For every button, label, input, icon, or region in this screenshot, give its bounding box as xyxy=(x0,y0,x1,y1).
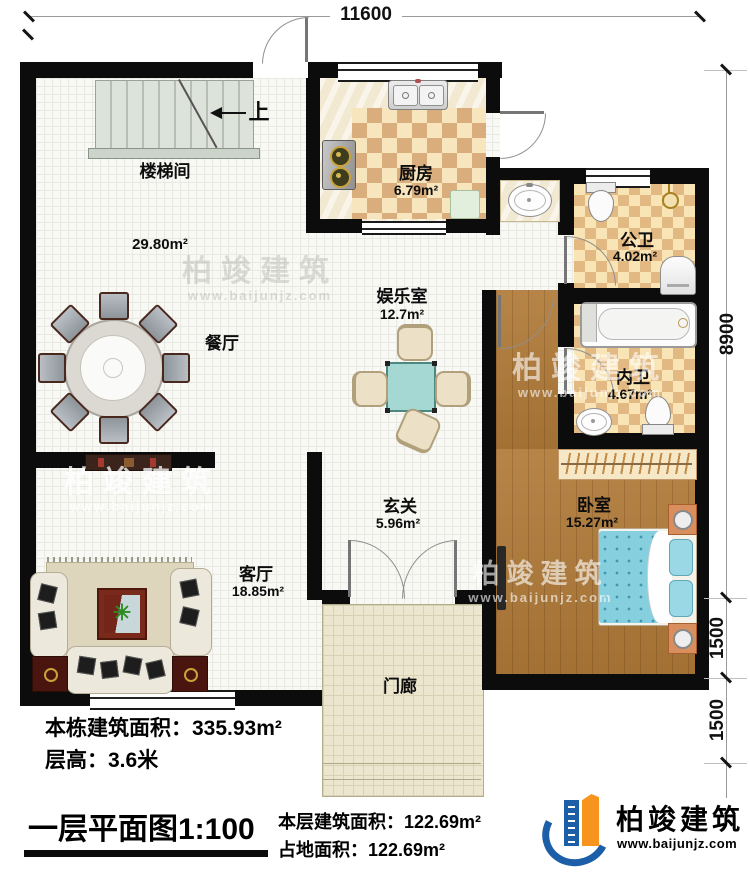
game-chair xyxy=(397,324,433,361)
table-corner xyxy=(432,361,437,366)
pillow xyxy=(669,580,693,617)
stairs-up-label: 上 xyxy=(246,101,272,124)
room-area-dining: 29.80m² xyxy=(110,237,210,254)
dim-tick xyxy=(22,28,34,40)
porch-step-line xyxy=(323,779,481,780)
nightstand xyxy=(668,623,697,654)
room-area-kitchen: 6.79m² xyxy=(376,183,456,198)
sideboard xyxy=(85,454,172,471)
sideboard-item xyxy=(150,458,156,467)
mahjong-table xyxy=(386,362,436,412)
sideboard-item xyxy=(98,458,104,467)
brand-website: www.baijunjz.com xyxy=(617,836,747,851)
room-area-entertainment: 12.7m² xyxy=(352,307,452,322)
end-table xyxy=(32,656,68,692)
kitchen-window xyxy=(338,62,478,82)
room-area-living: 18.85m² xyxy=(218,584,298,599)
basin-drain xyxy=(527,198,531,202)
inner-bath-bottom-wall xyxy=(558,433,709,449)
room-area-inner-bath: 4.67m² xyxy=(590,387,670,402)
room-area-public-bath: 4.02m² xyxy=(595,249,675,264)
dining-chair xyxy=(99,416,129,444)
wall-top-b xyxy=(308,62,338,78)
kitchen-left-wall xyxy=(306,78,320,219)
kitchen-pass-opening xyxy=(362,221,446,235)
wardrobe xyxy=(558,449,697,480)
right-dimension-label: 1500 xyxy=(707,685,731,755)
floor-area-text: 本层建筑面积：122.69m² xyxy=(278,808,518,834)
foyer-door-stub-left xyxy=(322,590,350,604)
pillow xyxy=(669,539,693,576)
dining-chair xyxy=(162,353,190,383)
right-dimension-label: 1500 xyxy=(707,603,731,673)
washer-controls xyxy=(667,284,689,287)
room-label-foyer: 玄关 xyxy=(360,498,440,517)
coffee-table: ✳ xyxy=(97,588,147,640)
stove xyxy=(322,140,356,190)
dining-chair xyxy=(99,292,129,320)
foyer-left-wall xyxy=(307,452,322,600)
end-table xyxy=(172,656,208,692)
sideboard-item xyxy=(124,458,134,467)
shower-head xyxy=(662,192,679,209)
stairs-landing xyxy=(88,148,260,159)
sink-faucet xyxy=(415,79,421,83)
bathtub xyxy=(580,302,697,348)
tv-panel xyxy=(497,546,506,610)
burner xyxy=(330,167,351,188)
sofa-cushion xyxy=(38,611,57,630)
burner xyxy=(330,146,351,167)
room-label-stairwell: 楼梯间 xyxy=(115,163,215,182)
plant: ✳ xyxy=(110,601,134,625)
medallion xyxy=(184,668,198,682)
room-label-kitchen: 厨房 xyxy=(376,165,456,184)
bath-sink xyxy=(576,408,612,436)
lamp xyxy=(673,510,693,530)
wall-top-a xyxy=(36,62,253,78)
kitchen-sink xyxy=(388,80,448,110)
kitchen-bottom-wall-a xyxy=(306,219,362,233)
brand-logo-icon xyxy=(540,794,614,858)
room-label-inner-bath: 内卫 xyxy=(593,369,673,388)
bed xyxy=(598,528,697,626)
corridor-right-stub xyxy=(558,290,574,347)
room-area-foyer: 5.96m² xyxy=(358,516,438,531)
room-label-dining: 餐厅 xyxy=(182,335,262,354)
lamp xyxy=(673,629,693,649)
sofa-cushion xyxy=(100,660,119,679)
logo-building-orange xyxy=(582,794,599,846)
medallion xyxy=(44,668,58,682)
brand-logo: 柏竣建筑 www.baijunjz.com xyxy=(540,792,745,862)
sofa-cushion xyxy=(123,656,143,676)
kitchen-right-wall-a xyxy=(486,78,500,113)
burner-dot xyxy=(336,173,341,178)
stairs-up-arrow-head xyxy=(210,107,222,119)
sofa-cushion xyxy=(180,579,200,599)
corridor-left-wall xyxy=(482,290,496,690)
toilet-tank xyxy=(642,424,674,435)
bath-top-wall-b xyxy=(650,168,709,184)
bedroom-bottom-wall xyxy=(482,674,709,690)
porch-step-line xyxy=(323,763,481,764)
living-bottom-wall-b xyxy=(235,690,322,706)
wash-basin xyxy=(508,184,552,217)
room-label-porch: 门廊 xyxy=(360,678,440,697)
foyer-door-stub-right xyxy=(455,590,482,604)
wall-top-c xyxy=(478,62,502,78)
game-chair xyxy=(435,371,471,407)
game-chair xyxy=(352,371,388,407)
room-label-bedroom: 卧室 xyxy=(554,497,634,516)
public-bath-left-wall-a xyxy=(558,184,574,235)
bathtub-basin xyxy=(598,308,690,340)
brand-name: 柏竣建筑 xyxy=(616,798,746,838)
plan-title: 一层平面图1:100 xyxy=(28,804,278,848)
top-dimension-label: 11600 xyxy=(330,4,402,26)
room-label-living: 客厅 xyxy=(216,566,296,585)
nightstand xyxy=(668,504,697,535)
bath-sink-drain xyxy=(591,419,595,423)
inner-bath-left-stub xyxy=(558,394,574,433)
table-corner xyxy=(385,361,390,366)
tub-deck xyxy=(582,304,597,342)
porch-floor xyxy=(322,604,484,797)
dining-chair xyxy=(38,353,66,383)
sink-drain xyxy=(428,92,435,99)
logo-building-blue xyxy=(564,800,579,846)
floor-plan: 上 xyxy=(0,0,750,872)
rug-fringe xyxy=(47,557,192,562)
floor-height-text: 层高：3.6米 xyxy=(45,744,325,774)
footprint-text: 占地面积：122.69m² xyxy=(278,836,518,862)
stairs-up-arrow-line xyxy=(222,112,246,114)
table-corner xyxy=(385,408,390,413)
right-dimension-label: 8900 xyxy=(717,299,741,369)
sofa-cushion xyxy=(77,656,96,675)
kitchen-bottom-wall-b xyxy=(446,219,500,233)
dining-table-center xyxy=(103,358,123,378)
bathtub-faucet xyxy=(678,318,688,328)
stairs xyxy=(95,80,254,150)
burner-dot xyxy=(336,152,341,157)
room-area-bedroom: 15.27m² xyxy=(552,515,632,530)
basin-faucet xyxy=(526,183,533,187)
wardrobe-rail xyxy=(561,463,692,465)
title-underline xyxy=(24,850,268,857)
entry-door-swing xyxy=(262,17,309,64)
sink-drain xyxy=(402,92,409,99)
table-corner xyxy=(432,408,437,413)
building-area-text: 本栋建筑面积：335.93m² xyxy=(45,712,325,742)
room-label-entertainment: 娱乐室 xyxy=(352,288,452,307)
